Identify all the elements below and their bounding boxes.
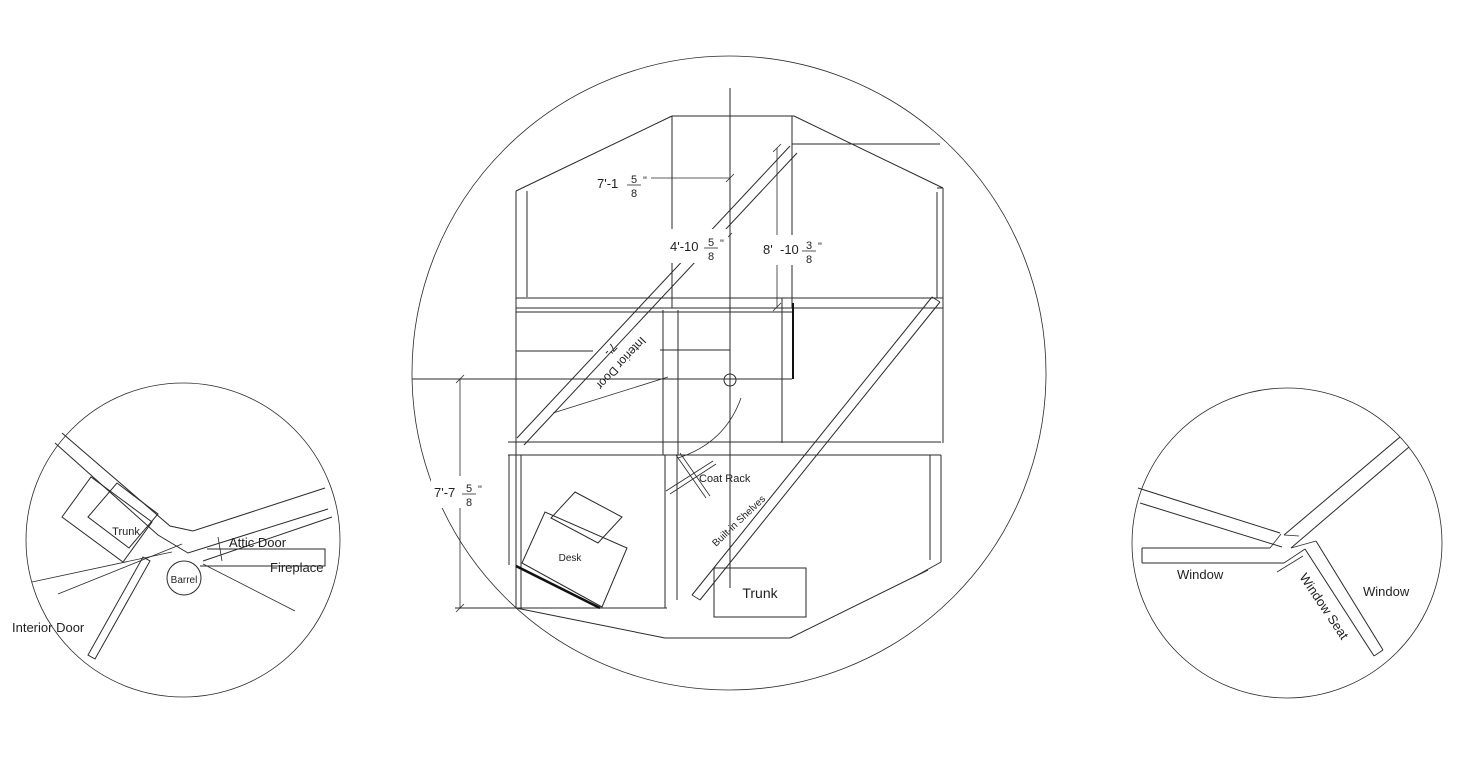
dimension-lines — [456, 144, 781, 612]
dim-left: 7'-7 5 8 " — [431, 476, 487, 509]
label-window-left: Window — [1177, 567, 1224, 582]
right-detail-walls — [1138, 437, 1409, 656]
dim-top-text: 7'-1 — [597, 176, 618, 191]
dim-left-inches: " — [478, 484, 482, 496]
door-swing-arc — [678, 398, 741, 458]
dim-right-inches: " — [818, 241, 822, 253]
dim-top-frac-den: 8 — [631, 188, 637, 200]
label-left-trunk: Trunk — [112, 526, 140, 538]
interior-door-leaf — [517, 146, 797, 458]
dim-left-frac-num: 5 — [466, 483, 472, 495]
built-in-shelves-band — [692, 297, 940, 600]
label-attic-door: Attic Door — [229, 535, 287, 550]
left-detail-view: Trunk Attic Door Fireplace Barrel Interi… — [12, 383, 340, 697]
label-window-seat: Window Seat — [1297, 570, 1352, 642]
dim-top-inches: " — [643, 175, 647, 187]
label-desk: Desk — [559, 553, 583, 564]
left-detail-circle — [26, 383, 340, 697]
label-coat-rack: Coat Rack — [699, 473, 751, 485]
dim-middle-frac-den: 8 — [708, 251, 714, 263]
label-interior-door-main: Interior Door — [593, 334, 649, 392]
dim-top: 7'-1 5 8 " — [597, 174, 647, 200]
right-detail-circle — [1132, 388, 1442, 698]
main-plan-view: 7'-1 5 8 " 4'-10 5 8 " 8' -10 3 8 " 7'-7… — [412, 56, 1046, 690]
label-trunk-main: Trunk — [742, 585, 778, 601]
dim-right-frac-den: 8 — [806, 254, 812, 266]
dim-right-text-a: 8' — [763, 242, 773, 257]
label-window-right: Window — [1363, 584, 1410, 599]
left-trunk-symbol — [62, 477, 158, 562]
dim-middle-inches: " — [720, 238, 724, 250]
cad-canvas: 7'-1 5 8 " 4'-10 5 8 " 8' -10 3 8 " 7'-7… — [0, 0, 1468, 768]
label-left-interior-door: Interior Door — [12, 620, 85, 635]
dim-right-frac-num: 3 — [806, 240, 812, 252]
label-fireplace: Fireplace — [270, 560, 323, 575]
desk-symbol — [516, 492, 627, 608]
dim-right: 8' -10 3 8 " — [760, 235, 826, 266]
dim-middle-frac-num: 5 — [708, 237, 714, 249]
right-detail-view: Window Window Seat Window — [1132, 388, 1442, 698]
cad-drawing: 7'-1 5 8 " 4'-10 5 8 " 8' -10 3 8 " 7'-7… — [0, 0, 1468, 768]
dim-left-frac-den: 8 — [466, 497, 472, 509]
dim-middle-text: 4'-10 — [670, 239, 699, 254]
main-detail-circle — [412, 56, 1046, 690]
label-door-dim-fragment: 7'- — [601, 340, 620, 359]
label-barrel: Barrel — [171, 575, 198, 586]
dim-left-text: 7'-7 — [434, 485, 455, 500]
main-plan-walls — [412, 88, 943, 638]
dim-right-text-b: -10 — [780, 242, 799, 257]
dim-middle: 4'-10 5 8 " — [668, 229, 728, 263]
label-built-in-shelves: Built-in Shelves — [710, 494, 768, 549]
dim-top-frac-num: 5 — [631, 174, 637, 186]
